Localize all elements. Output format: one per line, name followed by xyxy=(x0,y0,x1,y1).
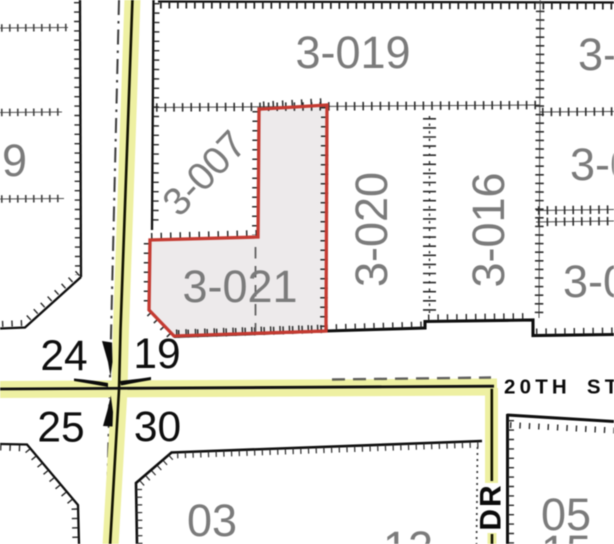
svg-text:15: 15 xyxy=(541,526,591,544)
svg-text:24: 24 xyxy=(40,333,87,380)
svg-text:9: 9 xyxy=(2,135,27,186)
svg-text:3-0: 3-0 xyxy=(563,256,614,307)
svg-text:12: 12 xyxy=(383,522,433,544)
svg-text:3-019: 3-019 xyxy=(295,27,410,78)
svg-text:3-0: 3-0 xyxy=(578,29,614,80)
svg-text:3-021: 3-021 xyxy=(182,261,297,312)
svg-text:3-0: 3-0 xyxy=(570,139,614,190)
svg-text:DR: DR xyxy=(475,483,508,530)
svg-text:3-016: 3-016 xyxy=(463,172,514,287)
svg-text:19: 19 xyxy=(133,331,180,378)
svg-text:25: 25 xyxy=(37,405,84,452)
svg-text:03: 03 xyxy=(187,495,237,544)
svg-text:30: 30 xyxy=(134,404,181,451)
svg-text:3-020: 3-020 xyxy=(346,172,397,287)
svg-text:20TH ST: 20TH ST xyxy=(504,376,614,399)
